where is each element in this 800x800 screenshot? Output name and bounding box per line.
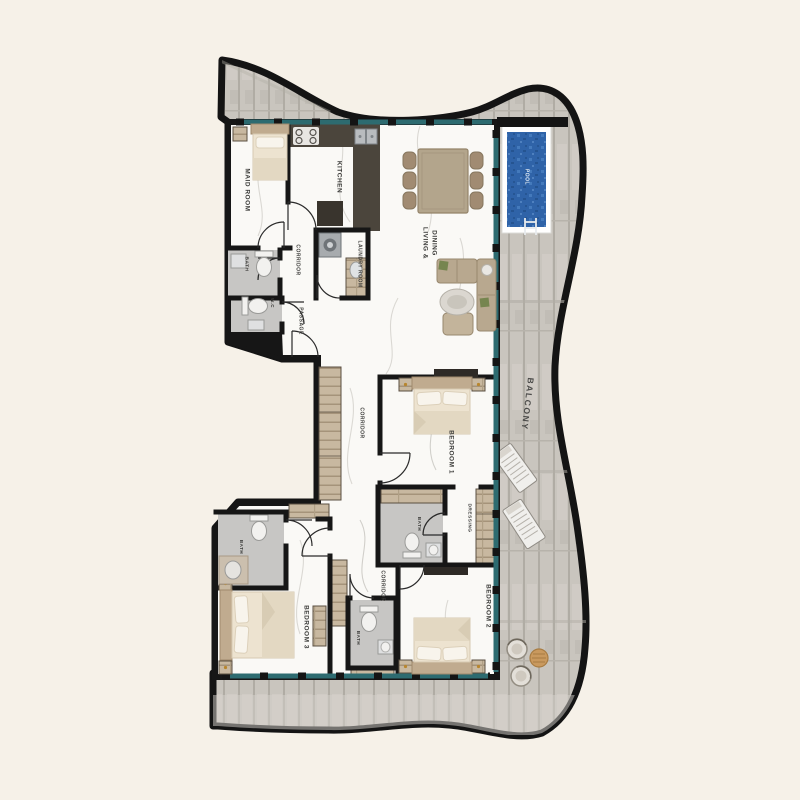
toilet-icon (250, 515, 268, 541)
passage-label: PASSAGE (298, 307, 304, 335)
dining-table (403, 149, 483, 213)
tv-console (434, 369, 478, 377)
pool-label: POOL (524, 169, 530, 185)
living-dining-line2-label: DINING (430, 230, 437, 256)
floor-plan-svg: MAID ROOMKITCHENBATHCORRIDORLAUNDRY ROOM… (0, 0, 800, 800)
bedroom-3-label: BEDROOM 3 (302, 605, 309, 649)
bath-middle-label: BATH (356, 631, 361, 645)
maid-room-label: MAID ROOM (243, 168, 250, 211)
kitchen-sink-icon (355, 129, 377, 144)
laundry-room-label: LAUNDRY ROOM (357, 240, 363, 287)
tv-console (424, 567, 468, 575)
entry-closet (289, 504, 329, 518)
kitchen-label: KITCHEN (335, 161, 342, 193)
dressing-label: DRESSING (467, 503, 473, 532)
sink-icon (426, 543, 441, 557)
toilet-icon (242, 297, 268, 315)
kitchen-island (317, 201, 343, 226)
sink-icon (378, 640, 393, 654)
bath-bedroom1-label: BATH (417, 517, 422, 531)
vanity-icon (219, 556, 248, 584)
hall-closet (332, 560, 347, 626)
sink-icon (248, 320, 264, 330)
outdoor-chair-icon (507, 639, 527, 659)
wc-label: W.C (270, 298, 275, 308)
toilet-icon (360, 606, 378, 632)
dressing-wardrobe (476, 489, 495, 564)
corridor-lower-label: CORRIDOR (380, 570, 386, 601)
bedroom-2-label: BEDROOM 2 (484, 584, 491, 628)
washing-machine-icon (319, 233, 341, 257)
bath-maid-label: BATH (244, 257, 250, 272)
sofa (437, 259, 496, 335)
bath1-closet (381, 489, 443, 503)
living-dining-line1-label: LIVING & (421, 227, 428, 259)
toilet-icon (255, 251, 273, 277)
bath-left-label: BATH (239, 540, 244, 554)
side-table (482, 265, 493, 276)
floor-plan-canvas: MAID ROOMKITCHENBATHCORRIDORLAUNDRY ROOM… (0, 0, 800, 800)
armchair (443, 313, 473, 335)
wall-above-pool (497, 117, 568, 127)
corridor-upper-label: CORRIDOR (295, 244, 301, 275)
bedroom3-dresser (313, 606, 326, 646)
corridor-mid-label: CORRIDOR (359, 407, 365, 438)
bedroom-1-label: BEDROOM 1 (447, 430, 454, 474)
pouf-table-icon (530, 649, 548, 667)
corridor-closet (319, 367, 341, 500)
